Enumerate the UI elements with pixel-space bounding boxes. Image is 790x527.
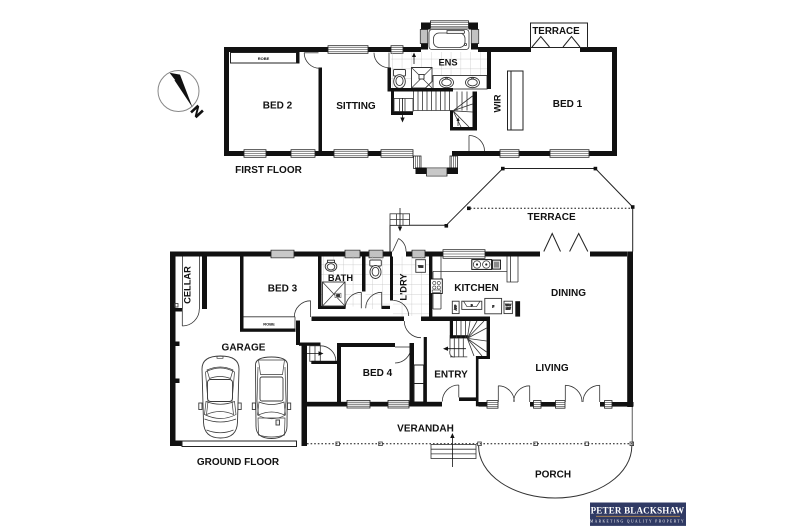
svg-text:ROBE: ROBE — [263, 321, 275, 326]
svg-text:BED 4: BED 4 — [363, 368, 393, 379]
svg-text:ROBE: ROBE — [258, 56, 270, 61]
svg-text:MW: MW — [506, 307, 511, 311]
svg-text:ENS: ENS — [438, 58, 457, 68]
svg-text:TERRACE: TERRACE — [532, 26, 580, 37]
svg-text:PORCH: PORCH — [535, 470, 571, 481]
svg-text:F: F — [492, 305, 494, 309]
svg-text:MARKETING QUALITY PROPERTY: MARKETING QUALITY PROPERTY — [590, 519, 685, 523]
svg-text:GROUND FLOOR: GROUND FLOOR — [197, 457, 280, 468]
svg-text:SITTING: SITTING — [336, 101, 376, 112]
svg-text:BED 1: BED 1 — [553, 99, 583, 110]
svg-text:DINING: DINING — [551, 288, 586, 299]
svg-text:FIRST FLOOR: FIRST FLOOR — [235, 165, 302, 176]
svg-text:BED 2: BED 2 — [263, 101, 293, 112]
svg-text:KITCHEN: KITCHEN — [454, 283, 498, 294]
svg-text:BATH: BATH — [328, 273, 353, 283]
svg-text:CELLAR: CELLAR — [183, 266, 193, 304]
svg-text:WIR: WIR — [493, 94, 503, 112]
svg-text:P: P — [471, 303, 473, 307]
svg-text:WM: WM — [418, 264, 424, 268]
svg-text:L'DRY: L'DRY — [399, 273, 409, 301]
svg-text:LIVING: LIVING — [535, 363, 569, 374]
svg-text:ENTRY: ENTRY — [434, 370, 468, 381]
svg-text:TERRACE: TERRACE — [527, 212, 576, 223]
svg-text:VERANDAH: VERANDAH — [397, 424, 454, 435]
svg-text:GARAGE: GARAGE — [222, 343, 266, 354]
svg-text:SH: SH — [336, 295, 340, 298]
svg-text:PETER BLACKSHAW: PETER BLACKSHAW — [591, 506, 685, 516]
svg-text:APP: APP — [454, 305, 458, 311]
svg-text:BED 3: BED 3 — [268, 284, 298, 295]
